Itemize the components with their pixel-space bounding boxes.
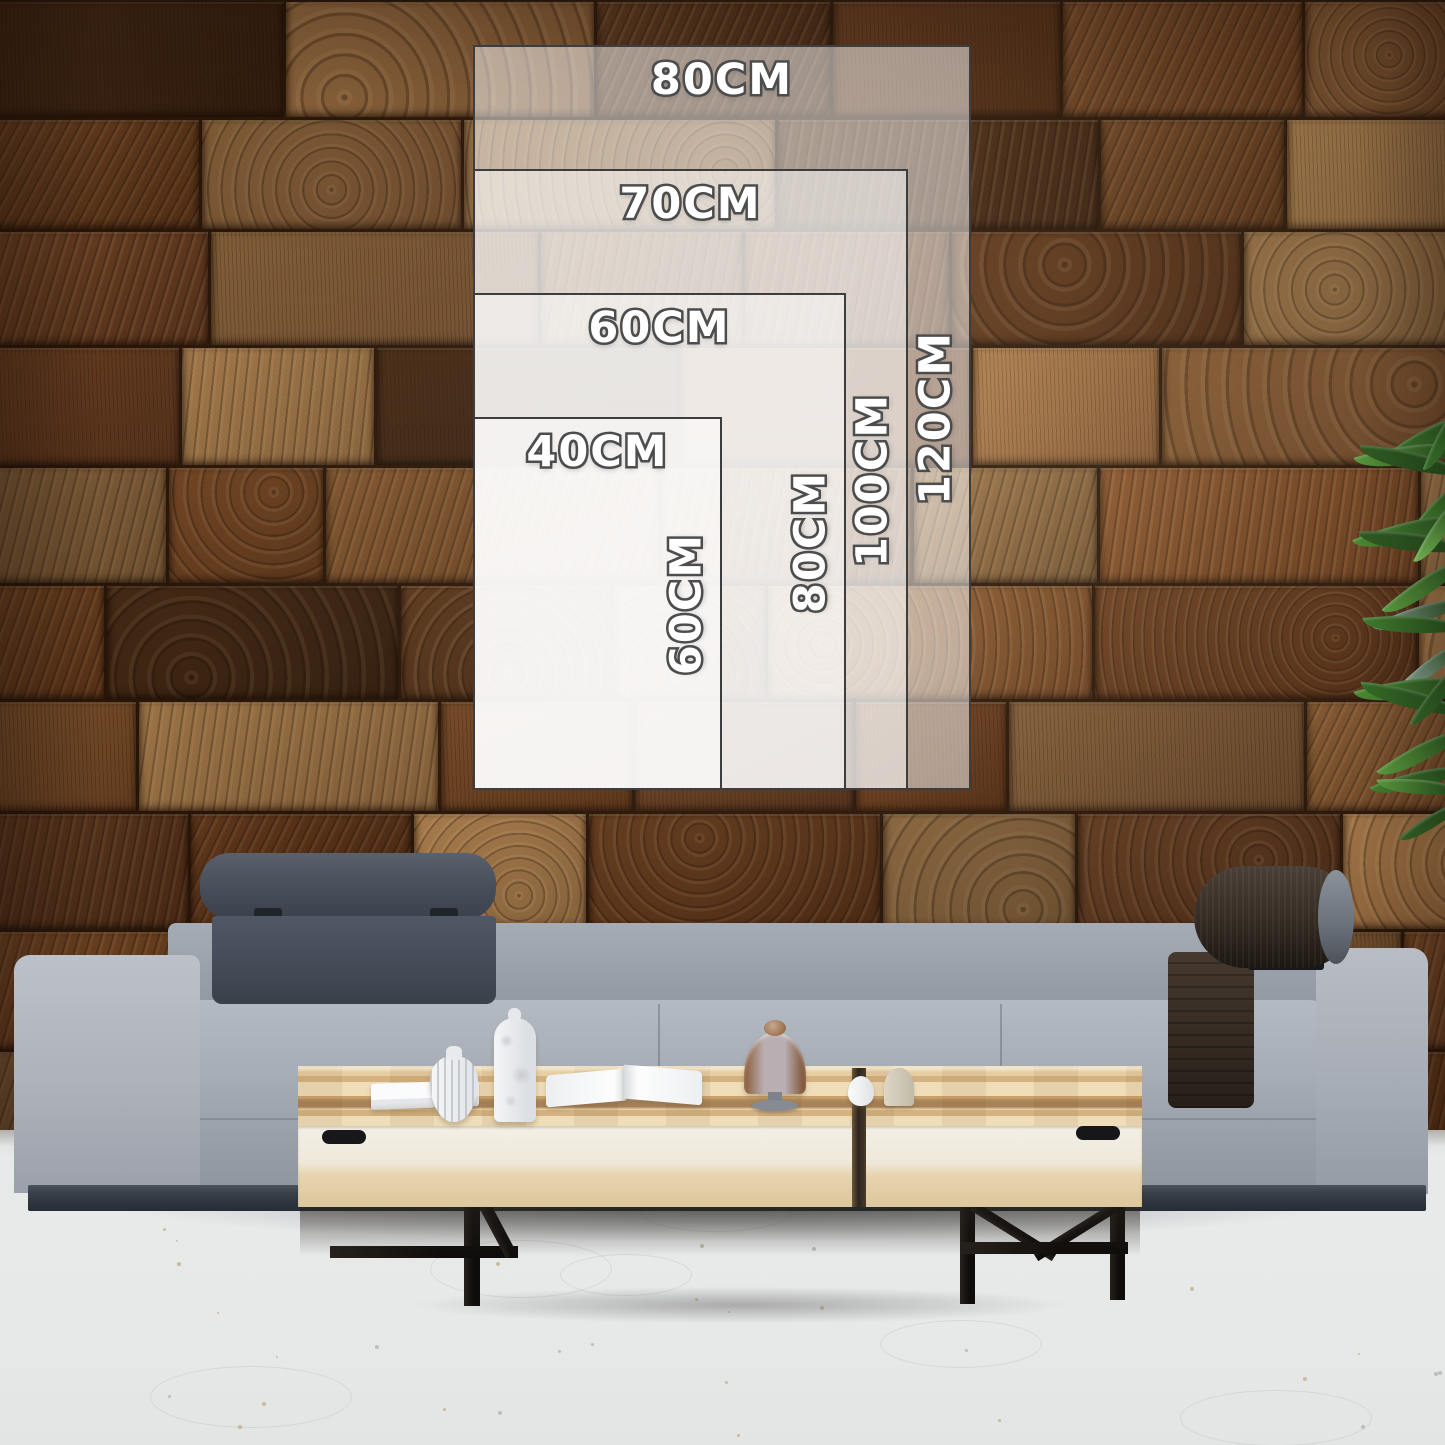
- cylinder-vase: [494, 1018, 536, 1122]
- open-book-right-page: [624, 1065, 702, 1106]
- open-book-left-page: [546, 1069, 626, 1108]
- egg-ornament: [848, 1076, 874, 1106]
- dome-ornament: [884, 1068, 914, 1106]
- cylinder-vase-knob: [508, 1008, 521, 1022]
- cloche-stand-foot: [752, 1100, 798, 1111]
- living-room-scene: 80CM120CM70CM100CM60CM80CM40CM60CM: [0, 0, 1445, 1445]
- cloche-knob: [764, 1020, 786, 1036]
- gourd-vase-neck: [446, 1046, 462, 1060]
- glass-cloche: [744, 1032, 806, 1094]
- gourd-vase: [430, 1056, 478, 1122]
- table-items: [0, 0, 1445, 1445]
